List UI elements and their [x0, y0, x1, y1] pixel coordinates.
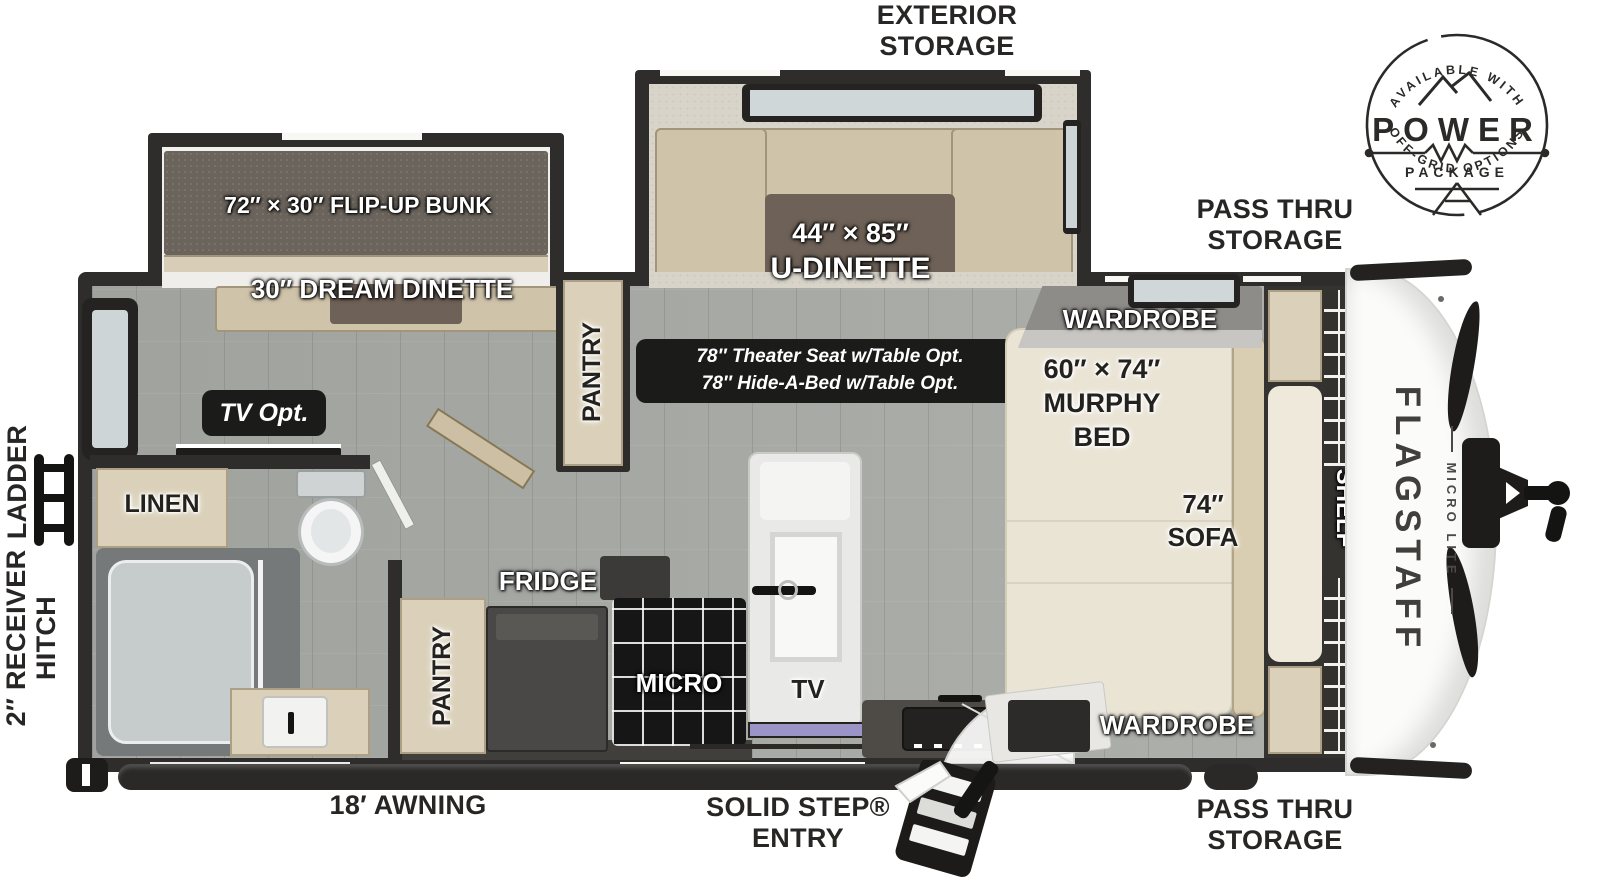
theater-seat-option-label: 78″ Theater Seat w/Table Opt. — [636, 343, 1024, 370]
bunk-slideout-window-trim — [282, 133, 422, 140]
entry-door-lock — [778, 580, 798, 600]
wardrobe-bottom-label: WARDROBE — [1082, 710, 1272, 741]
bath-faucet-icon — [288, 712, 294, 734]
pass-thru-storage-top-label: PASS THRU STORAGE — [1185, 194, 1365, 257]
flip-up-bunk-label: 72″ × 30″ FLIP-UP BUNK — [168, 192, 548, 219]
range-hood — [600, 556, 670, 600]
solid-step-entry-label: SOLID STEP® ENTRY — [678, 792, 918, 855]
receiver-hitch-label: 2″ RECEIVER HITCH — [1, 538, 65, 738]
brand-model-label: MICRO LITE — [1445, 462, 1460, 577]
murphy-mattress-edge — [1268, 386, 1322, 662]
awning-bracket — [66, 758, 108, 792]
front-wall-window-trim-2 — [1243, 276, 1301, 282]
brand-model-group: MICRO LITE — [1442, 400, 1462, 640]
awning-bracket-gap — [82, 764, 90, 786]
badge-power-label: POWER — [1372, 111, 1542, 148]
front-cap-screw-bottom — [1430, 742, 1436, 748]
exterior-storage-label: EXTERIOR STORAGE — [857, 0, 1037, 63]
brand-rule-right — [1451, 588, 1453, 614]
toilet-tank — [296, 470, 366, 498]
pantry-kitchen-label: PANTRY — [428, 606, 458, 746]
bath-sink — [262, 696, 328, 748]
sofa-label: 74″ SOFA — [1148, 488, 1258, 554]
rear-window-glass — [92, 310, 128, 448]
brand-logo: FLAGSTAFF — [1383, 300, 1427, 740]
front-cabinet-bottom — [1268, 666, 1322, 754]
u-dinette-skylight-frame — [742, 84, 1042, 122]
theater-seat-option-badge: 78″ Theater Seat w/Table Opt. 78″ Hide-A… — [636, 339, 1024, 403]
u-dinette-skylight-glass — [750, 90, 1034, 116]
u-dinette-window-trim-left — [660, 70, 780, 76]
entry-door-upper-panel — [760, 462, 850, 520]
dream-dinette-label: 30″ DREAM DINETTE — [197, 274, 567, 305]
fridge-top — [496, 614, 598, 640]
wardrobe-skylight-glass — [1134, 280, 1234, 302]
ladder-label: LADDER — [2, 412, 32, 552]
micro-label: MICRO — [616, 668, 742, 699]
power-package-badge: AVAILABLE WITH OFF-GRID OPTIONS POWER PA… — [1357, 25, 1557, 225]
murphy-bed-name-label: MURPHY BED — [1037, 386, 1167, 454]
toilet-bowl-inner — [311, 509, 351, 553]
brand-rule-left — [1451, 426, 1453, 452]
pass-thru-storage-bottom-label: PASS THRU STORAGE — [1185, 794, 1365, 857]
u-dinette-side-window-glass — [1066, 126, 1077, 228]
ladder-icon — [28, 450, 80, 550]
pantry-top-label: PANTRY — [578, 297, 608, 447]
front-cabinet-top — [1268, 290, 1322, 382]
tv-option-label: TV Opt. — [220, 399, 309, 427]
svg-text:AVAILABLE WITH: AVAILABLE WITH — [1386, 63, 1527, 110]
tv-label: TV — [783, 674, 833, 705]
badge-available-with-label: AVAILABLE WITH — [1386, 63, 1527, 110]
awning-label: 18′ AWNING — [308, 790, 508, 821]
hide-a-bed-option-label: 78″ Hide-A-Bed w/Table Opt. — [636, 370, 1024, 397]
bathroom-wall — [90, 455, 370, 469]
fridge — [486, 606, 608, 752]
front-cap-trim-top — [1350, 259, 1473, 281]
floorplan-canvas: TV Opt. PANTRY 78″ Theater Seat w/Table … — [0, 0, 1600, 888]
fridge-label: FRIDGE — [478, 566, 618, 597]
wardrobe-skylight-frame — [1128, 274, 1240, 308]
front-cap-screw-top — [1438, 296, 1444, 302]
badge-package-label: PACKAGE — [1405, 164, 1509, 180]
u-dinette-side-window — [1063, 120, 1081, 234]
awning-bar — [118, 764, 1192, 790]
murphy-bed-seam-2 — [1007, 582, 1233, 584]
awning-bar-end — [1204, 764, 1258, 790]
hitch-icon — [1462, 428, 1582, 558]
tv-option-badge: TV Opt. — [202, 390, 326, 436]
u-dinette-window-trim-right — [1005, 70, 1080, 76]
murphy-bed-size-label: 60″ × 74″ — [1012, 352, 1192, 386]
murphy-bed-label-group: 60″ × 74″ MURPHY BED — [1012, 352, 1192, 454]
u-dinette-size-label: 44″ × 85″ — [738, 218, 963, 249]
wardrobe-top-label: WARDROBE — [1045, 304, 1235, 335]
wardrobe-bottom-hamper — [1008, 700, 1090, 752]
toilet-bowl-icon — [298, 498, 364, 566]
rear-window-frame — [82, 298, 138, 460]
u-dinette-name-label: U-DINETTE — [738, 252, 963, 286]
linen-label: LINEN — [96, 490, 228, 519]
